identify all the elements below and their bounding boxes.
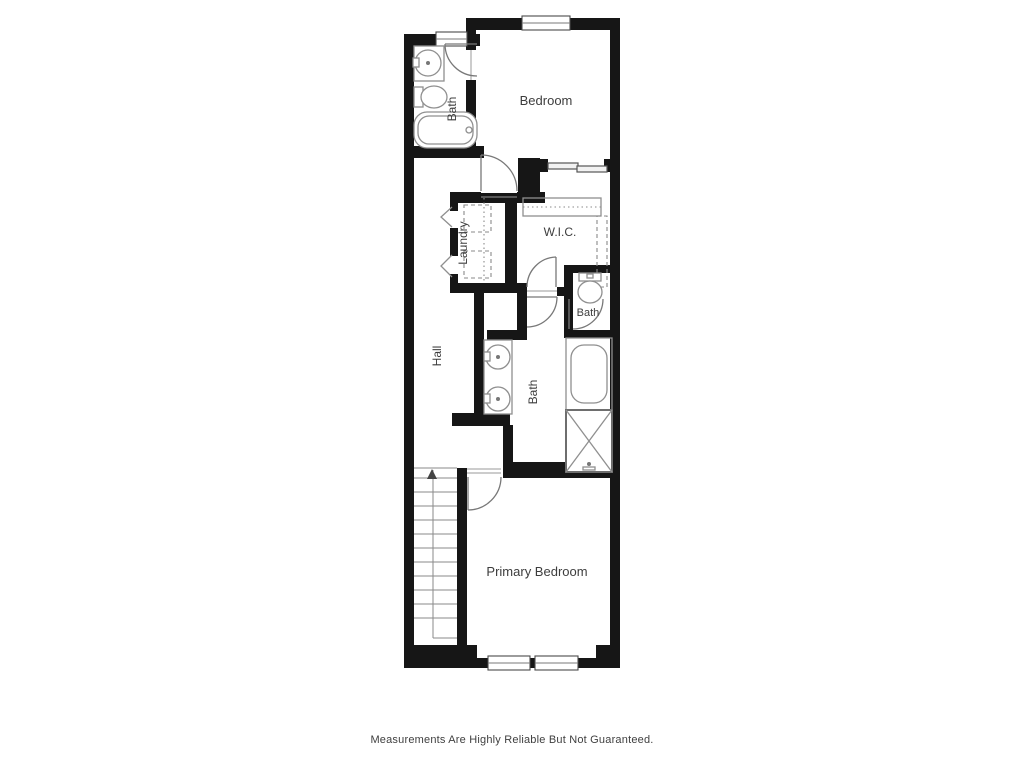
wall-left-outer xyxy=(404,34,414,668)
wall-vestibule-right xyxy=(517,291,527,340)
bath-sink2-drain xyxy=(496,397,500,401)
bath-shower-head xyxy=(587,462,591,466)
topbath-sink-drain xyxy=(426,61,430,65)
wic-sliding-door-a xyxy=(548,163,578,169)
wall-stairs-right xyxy=(457,468,467,647)
door-primary-bedroom xyxy=(468,477,501,510)
wall-laundry-right xyxy=(505,193,517,293)
wall-slider-jamb-left xyxy=(536,159,548,172)
label-wic: W.I.C. xyxy=(544,225,577,239)
label-primary-bath: Bath xyxy=(526,380,540,405)
label-small-bath: Bath xyxy=(577,307,600,319)
bath-sink1-faucet xyxy=(484,352,490,361)
bath-sink2-faucet xyxy=(484,394,490,403)
floorplan-page: BedroomBathLaundryW.I.C.BathHallBathPrim… xyxy=(0,0,1024,768)
wall-hall-vanity xyxy=(474,337,484,417)
wall-vestibule-left xyxy=(474,291,484,340)
wall-bottom-left-chunk xyxy=(404,645,477,668)
stairs-up-arrow xyxy=(427,469,437,479)
topbath-toilet-bowl xyxy=(421,86,447,108)
door-bedroom xyxy=(481,155,517,191)
door-wic xyxy=(527,257,556,287)
wall-smallbath-top xyxy=(564,265,620,273)
smallbath-toilet-bowl xyxy=(578,281,602,303)
label-top-bath: Bath xyxy=(445,97,459,122)
wall-bottom-right-chunk xyxy=(596,645,620,668)
topbath-sink-faucet xyxy=(413,58,419,67)
wall-smallbath-bottom xyxy=(564,330,620,338)
label-laundry: Laundry xyxy=(456,221,470,264)
wic-sliding-door-b xyxy=(577,166,607,172)
disclaimer-text: Measurements Are Highly Reliable But Not… xyxy=(0,734,1024,746)
laundry-bifold-lower xyxy=(441,255,452,277)
label-hall: Hall xyxy=(430,346,444,367)
bath-tub-outer xyxy=(566,338,612,410)
label-primary-bedroom: Primary Bedroom xyxy=(486,564,587,579)
bath-sink1-drain xyxy=(496,355,500,359)
wall-bath-landing-divider xyxy=(503,425,513,465)
floor-plan: BedroomBathLaundryW.I.C.BathHallBathPrim… xyxy=(0,0,1024,768)
door-bath-entry xyxy=(527,297,557,327)
bath-tub-basin xyxy=(571,345,607,403)
label-bedroom: Bedroom xyxy=(520,93,573,108)
wall-vanity-bottom xyxy=(452,413,510,426)
